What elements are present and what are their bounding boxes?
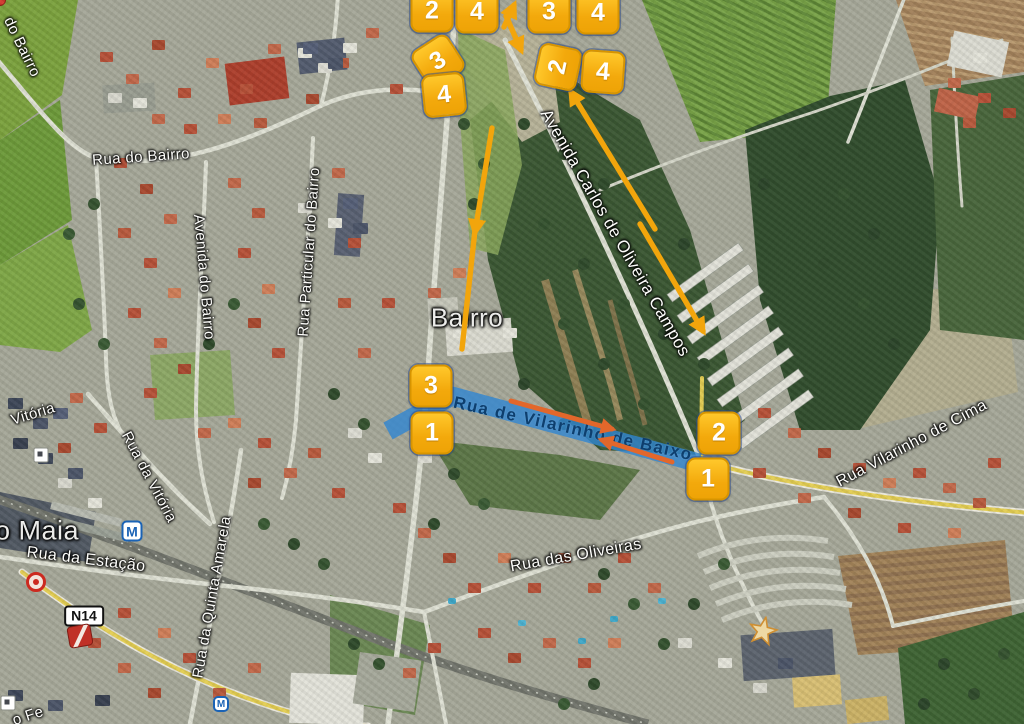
marker-number: 3: [542, 0, 556, 27]
marker-number: 1: [425, 419, 439, 448]
marker-number: 1: [701, 465, 715, 494]
marker-number: 2: [712, 419, 726, 448]
route-markers: 243434243121: [0, 0, 1024, 724]
marker-number: 2: [542, 57, 573, 77]
marker-number: 3: [424, 372, 438, 401]
route-marker-4[interactable]: 4: [456, 0, 499, 34]
route-marker-1[interactable]: 1: [687, 458, 730, 501]
route-marker-2[interactable]: 2: [698, 412, 741, 455]
satellite-map[interactable]: do BairroRua do BairroAvenida do BairroR…: [0, 0, 1024, 724]
route-marker-2[interactable]: 2: [532, 41, 583, 92]
route-marker-1[interactable]: 1: [411, 412, 454, 455]
route-marker-3[interactable]: 3: [528, 0, 571, 34]
route-marker-4[interactable]: 4: [580, 49, 626, 95]
marker-number: 2: [425, 0, 439, 26]
marker-number: 4: [436, 80, 453, 110]
route-marker-2[interactable]: 2: [411, 0, 454, 33]
route-marker-3[interactable]: 3: [410, 365, 453, 408]
route-marker-4[interactable]: 4: [577, 0, 620, 35]
route-marker-4[interactable]: 4: [420, 71, 467, 118]
marker-number: 4: [470, 0, 484, 27]
marker-number: 4: [591, 0, 605, 28]
marker-number: 4: [595, 57, 611, 87]
